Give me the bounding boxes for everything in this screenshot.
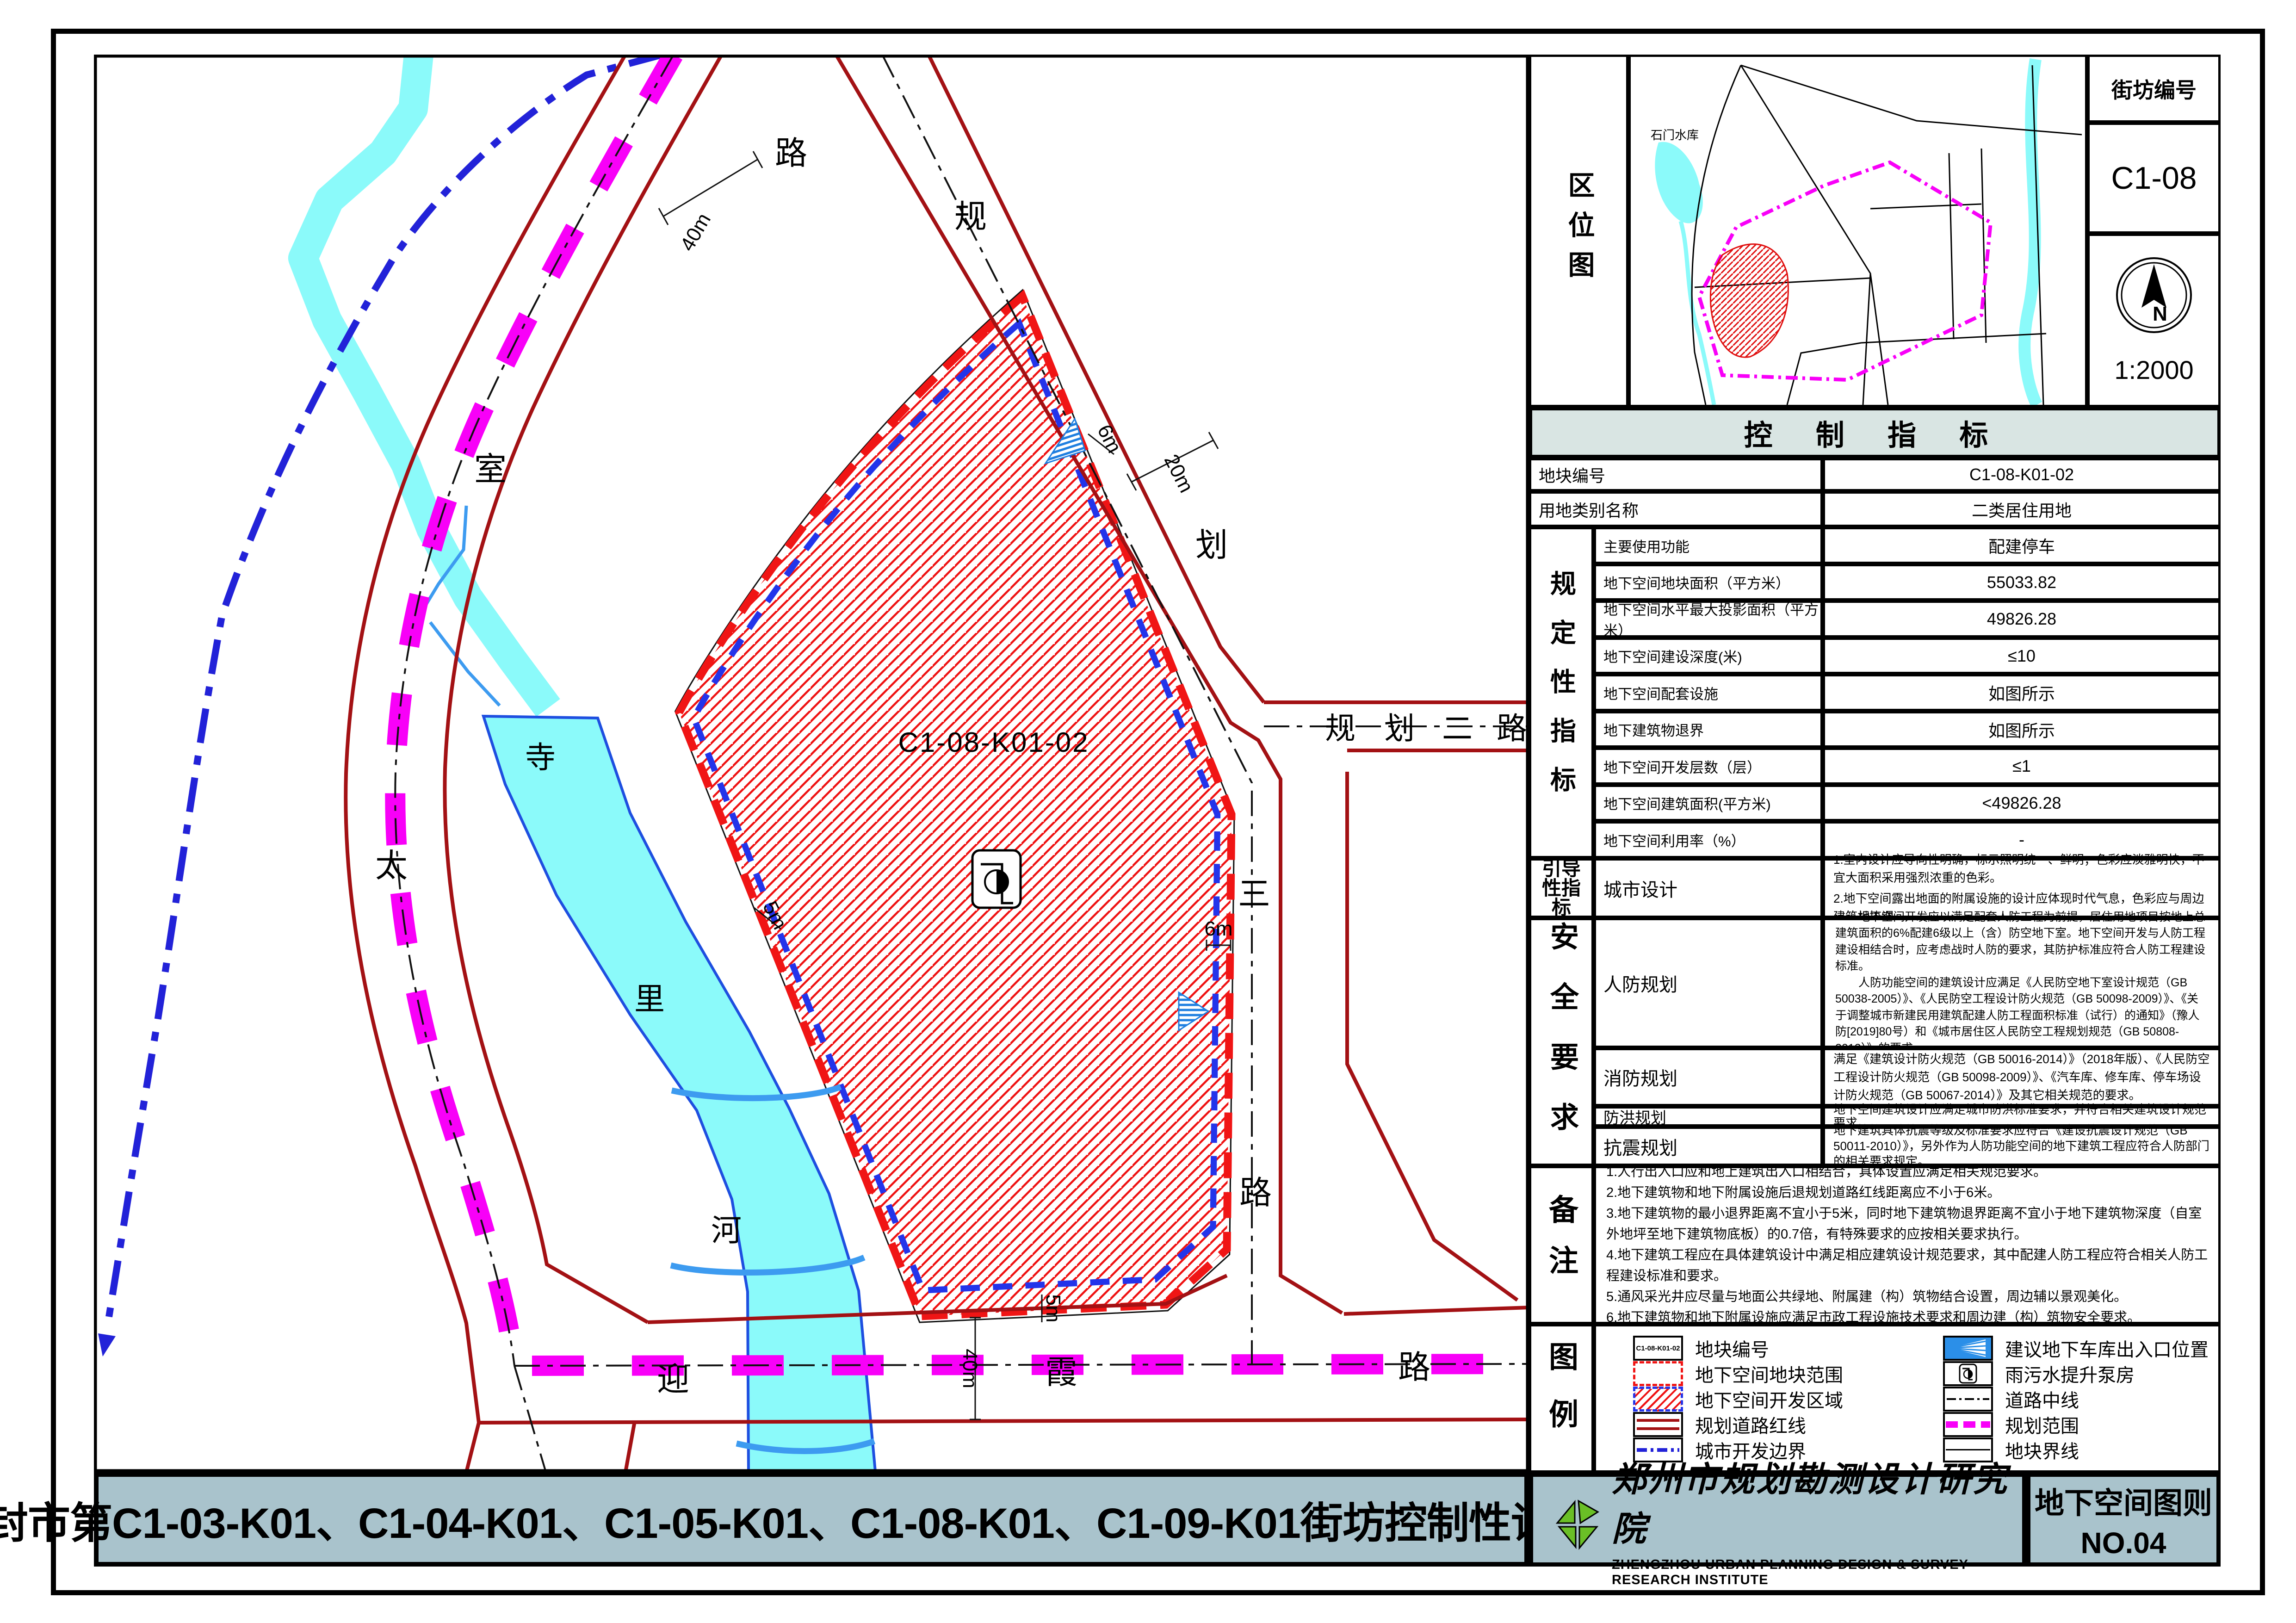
sheet-number: NO.04 xyxy=(2081,1526,2166,1560)
svg-text:6m: 6m xyxy=(1204,917,1232,940)
boundary-arrowhead xyxy=(98,1333,116,1357)
svg-text:里: 里 xyxy=(634,982,665,1016)
block-number-label: 街坊编号 xyxy=(2111,74,2197,104)
fire-label: 消防规划 xyxy=(1594,1048,1823,1106)
group-guiding: 引导性指标 xyxy=(1529,858,1594,918)
svg-text:二: 二 xyxy=(1442,711,1473,745)
svg-text:河: 河 xyxy=(711,1213,742,1247)
yingxia-road-north-edge-east xyxy=(1344,1307,1529,1314)
svg-text:三: 三 xyxy=(1238,876,1270,912)
spec-row-label: 地下空间建设深度(米) xyxy=(1594,638,1823,674)
institute-logo xyxy=(1553,1496,1603,1552)
spec-row-label: 地下空间配套设施 xyxy=(1594,674,1823,711)
yingxia-road-south-edge xyxy=(479,1419,1529,1423)
svg-text:划: 划 xyxy=(1195,527,1228,563)
civil-defense-text: 地下空间开发应以满足配套人防工程为前提，居住用地项目按地上总建筑面积的6%配建6… xyxy=(1823,918,2221,1048)
row-plot-no-label: 地块编号 xyxy=(1529,458,1823,491)
svg-text:路: 路 xyxy=(775,135,807,171)
north-arrow-icon: N xyxy=(2115,256,2193,335)
row-landuse-value: 二类居住用地 xyxy=(1823,491,2221,527)
spec-row-label: 地下建筑物退界 xyxy=(1594,711,1823,748)
sheet-name: 地下空间图则 xyxy=(2035,1480,2212,1522)
institute-name-cn: 郑州市规划勘测设计研究院 xyxy=(1612,1452,2022,1551)
main-map: 40m 20m 6m 6m 5m 5m 40m C1-08-K01-02 太 室… xyxy=(94,55,1529,1472)
plot-number-icon: C1-08-K01-02 xyxy=(1633,1336,1683,1361)
block-number-label-cell: 街坊编号 xyxy=(2087,55,2221,123)
spec-row-label: 地下空间建筑面积(平方米) xyxy=(1594,785,1823,821)
spec-row-value: ≤10 xyxy=(1823,638,2221,674)
group-regulatory: 规定性指标 xyxy=(1529,527,1594,858)
planned-road-redline-icon xyxy=(1633,1412,1683,1437)
svg-text:太: 太 xyxy=(375,848,408,884)
legend-item-planning-scope: 规划范围 xyxy=(1943,1411,2079,1438)
svg-text:6m: 6m xyxy=(1093,421,1126,457)
north-scale-cell: N 1:2000 xyxy=(2087,234,2221,407)
svg-text:40m: 40m xyxy=(959,1349,981,1388)
spec-row-label: 地下空间地块面积（平方米） xyxy=(1594,564,1823,601)
remarks-cell: 1.人行出入口应和地上建筑出入口相结合，具体设置应满足相关规范要求。 2.地下建… xyxy=(1594,1166,2221,1324)
svg-text:路: 路 xyxy=(1497,711,1527,745)
spec-row-value: 如图所示 xyxy=(1823,711,2221,748)
parcel-code-label: C1-08-K01-02 xyxy=(898,727,1089,758)
legend-item-pump-station: 雨污水提升泵房 xyxy=(1943,1360,2135,1387)
footer-sheet-no-cell: 地下空间图则 NO.04 xyxy=(2026,1473,2221,1567)
underground-plot-extent-icon xyxy=(1633,1361,1683,1386)
svg-text:划: 划 xyxy=(1384,711,1415,745)
sheet-title: 登封市第C1-03-K01、C1-04-K01、C1-05-K01、C1-08-… xyxy=(0,1489,1679,1550)
spec-row-value: 49826.28 xyxy=(1823,601,2221,638)
garage-entrance-legend-icon xyxy=(1943,1336,1993,1361)
location-minimap: 石门水库 xyxy=(1628,55,2087,407)
svg-text:迎: 迎 xyxy=(657,1361,689,1397)
svg-text:寺: 寺 xyxy=(525,740,556,774)
row-plot-no-value: C1-08-K01-02 xyxy=(1823,458,2221,491)
pump-station-legend-icon xyxy=(1943,1361,1993,1386)
svg-text:室: 室 xyxy=(474,451,507,487)
spec-row-value: 如图所示 xyxy=(1823,674,2221,711)
svg-text:路: 路 xyxy=(1398,1349,1430,1385)
legend-item-plot-extent: 地下空间地块范围 xyxy=(1633,1360,1843,1387)
legend-item-road-centerline: 道路中线 xyxy=(1943,1386,2079,1412)
spec-row-value: 55033.82 xyxy=(1823,564,2221,601)
spec-row-label: 主要使用功能 xyxy=(1594,527,1823,564)
svg-text:20m: 20m xyxy=(1160,451,1198,496)
guihua3-road-southeast-edge xyxy=(1347,772,1517,1300)
block-number: C1-08 xyxy=(2111,160,2197,196)
planning-scope-icon xyxy=(1943,1412,1993,1437)
map-scale: 1:2000 xyxy=(2114,355,2193,385)
spec-row-label: 地下空间利用率（%） xyxy=(1594,821,1823,858)
control-indicators-header: 控 制 指 标 xyxy=(1529,407,2221,458)
svg-text:规: 规 xyxy=(954,198,987,235)
spec-row-value: ≤1 xyxy=(1823,748,2221,785)
block-number-cell: C1-08 xyxy=(2087,123,2221,234)
svg-text:5m: 5m xyxy=(1042,1294,1064,1322)
title-bar: 登封市第C1-03-K01、C1-04-K01、C1-05-K01、C1-08-… xyxy=(94,1472,1529,1567)
city-development-boundary xyxy=(107,55,662,1327)
plan-sheet: 40m 20m 6m 6m 5m 5m 40m C1-08-K01-02 太 室… xyxy=(0,0,2296,1623)
svg-text:N: N xyxy=(2153,303,2167,325)
pump-station-icon xyxy=(972,850,1021,908)
spec-row-label: 地下空间开发层数（层） xyxy=(1594,748,1823,785)
underground-development-zone-icon xyxy=(1633,1387,1683,1412)
fire-text: 满足《建筑设计防火规范（GB 50016-2014）》（2018年版）、《人民防… xyxy=(1823,1048,2221,1106)
group-safety: 安全要求 xyxy=(1529,918,1594,1166)
svg-text:规: 规 xyxy=(1325,711,1355,745)
row-landuse-label: 用地类别名称 xyxy=(1529,491,1823,527)
legend-item-plot-number: C1-08-K01-02 地块编号 xyxy=(1633,1335,1769,1362)
legend-item-development-zone: 地下空间开发区域 xyxy=(1633,1386,1843,1412)
legend-item-road-redline: 规划道路红线 xyxy=(1633,1411,1806,1438)
svg-text:路: 路 xyxy=(1239,1175,1272,1211)
spec-row-value: 配建停车 xyxy=(1823,527,2221,564)
legend-item-garage-entrance: 建议地下车库出入口位置 xyxy=(1943,1335,2209,1362)
institute-name-en: ZHENGZHOU URBAN PLANNING DESIGN & SURVEY… xyxy=(1612,1557,2022,1588)
minimap-reservoir-label: 石门水库 xyxy=(1651,128,1699,142)
spec-row-value: <49826.28 xyxy=(1823,785,2221,821)
urban-design-label: 城市设计 xyxy=(1594,858,1823,918)
footer-institute-cell: 郑州市规划勘测设计研究院 ZHENGZHOU URBAN PLANNING DE… xyxy=(1529,1473,2026,1567)
group-remarks: 备注 xyxy=(1529,1166,1594,1324)
svg-text:霞: 霞 xyxy=(1045,1354,1077,1390)
flood-label: 防洪规划 xyxy=(1594,1106,1823,1127)
taishi-road-south-stub xyxy=(625,1421,635,1472)
road-centerline-icon xyxy=(1943,1387,1993,1412)
spec-row-label: 地下空间水平最大投影面积（平方米） xyxy=(1594,601,1823,638)
svg-text:40m: 40m xyxy=(676,209,715,255)
location-map-label: 区位图 xyxy=(1529,55,1628,407)
minimap-svg: 石门水库 xyxy=(1631,57,2085,405)
civil-defense-label: 人防规划 xyxy=(1594,918,1823,1048)
group-legend: 图例 xyxy=(1529,1324,1594,1473)
